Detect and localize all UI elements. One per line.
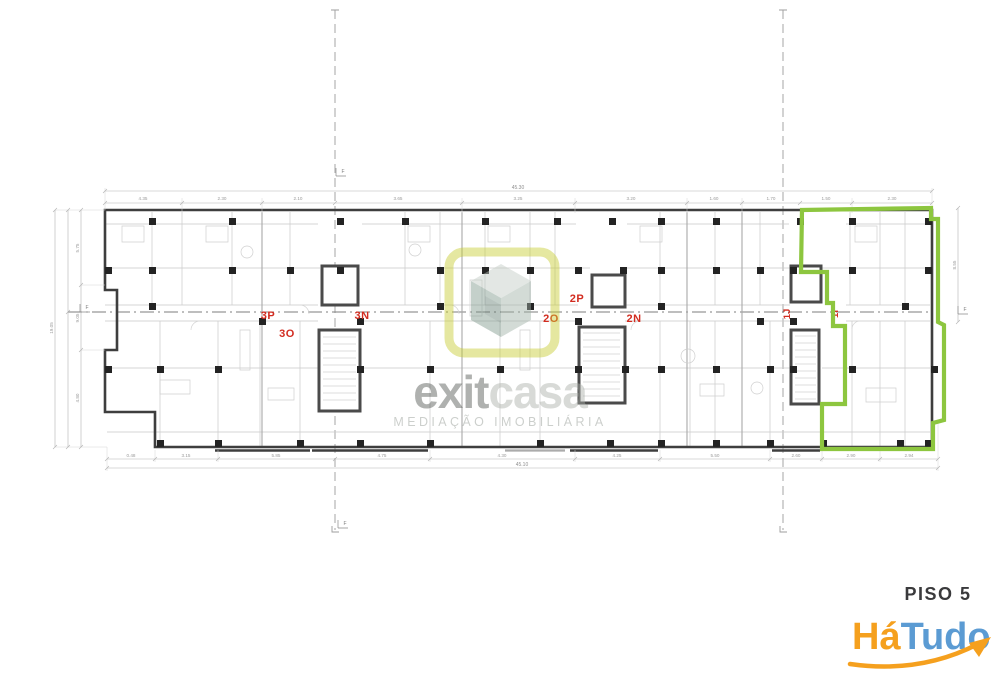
floor-plan-svg: 45.30 4.35 2.30 2.10 3.65 3.25 3.20 1.60…	[0, 0, 1001, 678]
dim-text: 4.75	[378, 453, 387, 458]
table-icon	[751, 382, 763, 394]
cube-icon	[471, 264, 531, 337]
dim-text: 9.05	[75, 313, 80, 322]
section-marker-label: F	[341, 169, 344, 175]
highlighted-unit-outline	[801, 208, 944, 449]
dim-text: 5.85	[272, 453, 281, 458]
section-markers: F F F F	[80, 168, 968, 528]
hatudo-brand-text: HáTudo	[852, 616, 991, 658]
dim-text: 2.94	[905, 453, 914, 458]
section-marker-label: F	[343, 521, 346, 527]
table-icon	[409, 244, 421, 256]
dim-text: 1.50	[822, 196, 831, 201]
dim-right-overall: 8.55	[952, 260, 957, 269]
unit-label-1J: 1J	[782, 309, 793, 320]
hatudo-logo: HáTudo	[850, 616, 991, 667]
dim-text: 3.15	[182, 453, 191, 458]
dim-text: 4.35	[139, 196, 148, 201]
unit-label-3P: 3P	[261, 310, 275, 322]
section-marker-label: F	[963, 307, 966, 313]
dim-text: 2.10	[294, 196, 303, 201]
table-icon	[681, 349, 695, 363]
dim-text: 2.30	[218, 196, 227, 201]
hatudo-brand-part1: Há	[852, 616, 901, 658]
stairwell-left	[319, 330, 360, 411]
watermark-brand-bold: exit	[413, 366, 489, 418]
floor-caption: PISO 5	[904, 584, 971, 604]
dim-text: 5.50	[711, 453, 720, 458]
dim-text: 1.70	[767, 196, 776, 201]
dim-text: 4.25	[613, 453, 622, 458]
section-marker-label: F	[85, 305, 88, 311]
dim-text: 3.20	[627, 196, 636, 201]
dim-text: 4.80	[75, 393, 80, 402]
dim-text: 1.60	[710, 196, 719, 201]
dim-text: 2.90	[847, 453, 856, 458]
watermark-brand-light: casa	[488, 366, 588, 418]
dim-text: 2.60	[792, 453, 801, 458]
table-icon	[241, 246, 253, 258]
dim-top-overall: 45.30	[512, 185, 525, 191]
floor-plan-image: 45.30 4.35 2.30 2.10 3.65 3.25 3.20 1.60…	[0, 0, 1001, 678]
unit-label-2N: 2N	[626, 313, 641, 325]
elevator-shaft-center	[592, 275, 625, 307]
dim-left-overall: 19.05	[49, 322, 54, 334]
unit-label-2P: 2P	[570, 293, 584, 305]
dim-text: 5.75	[75, 243, 80, 252]
dim-bottom-overall: 45.10	[516, 462, 529, 468]
dim-text: 3.65	[394, 196, 403, 201]
dim-text: 2.30	[888, 196, 897, 201]
dim-text: 0.48	[127, 453, 136, 458]
dim-text: 4.30	[498, 453, 507, 458]
unit-label-3O: 3O	[279, 328, 295, 340]
unit-label-3N: 3N	[354, 310, 369, 322]
watermark-brand: exitcasa	[413, 366, 588, 418]
watermark-tagline: MEDIAÇÃO IMOBILIÁRIA	[393, 414, 606, 429]
dim-text: 3.25	[514, 196, 523, 201]
